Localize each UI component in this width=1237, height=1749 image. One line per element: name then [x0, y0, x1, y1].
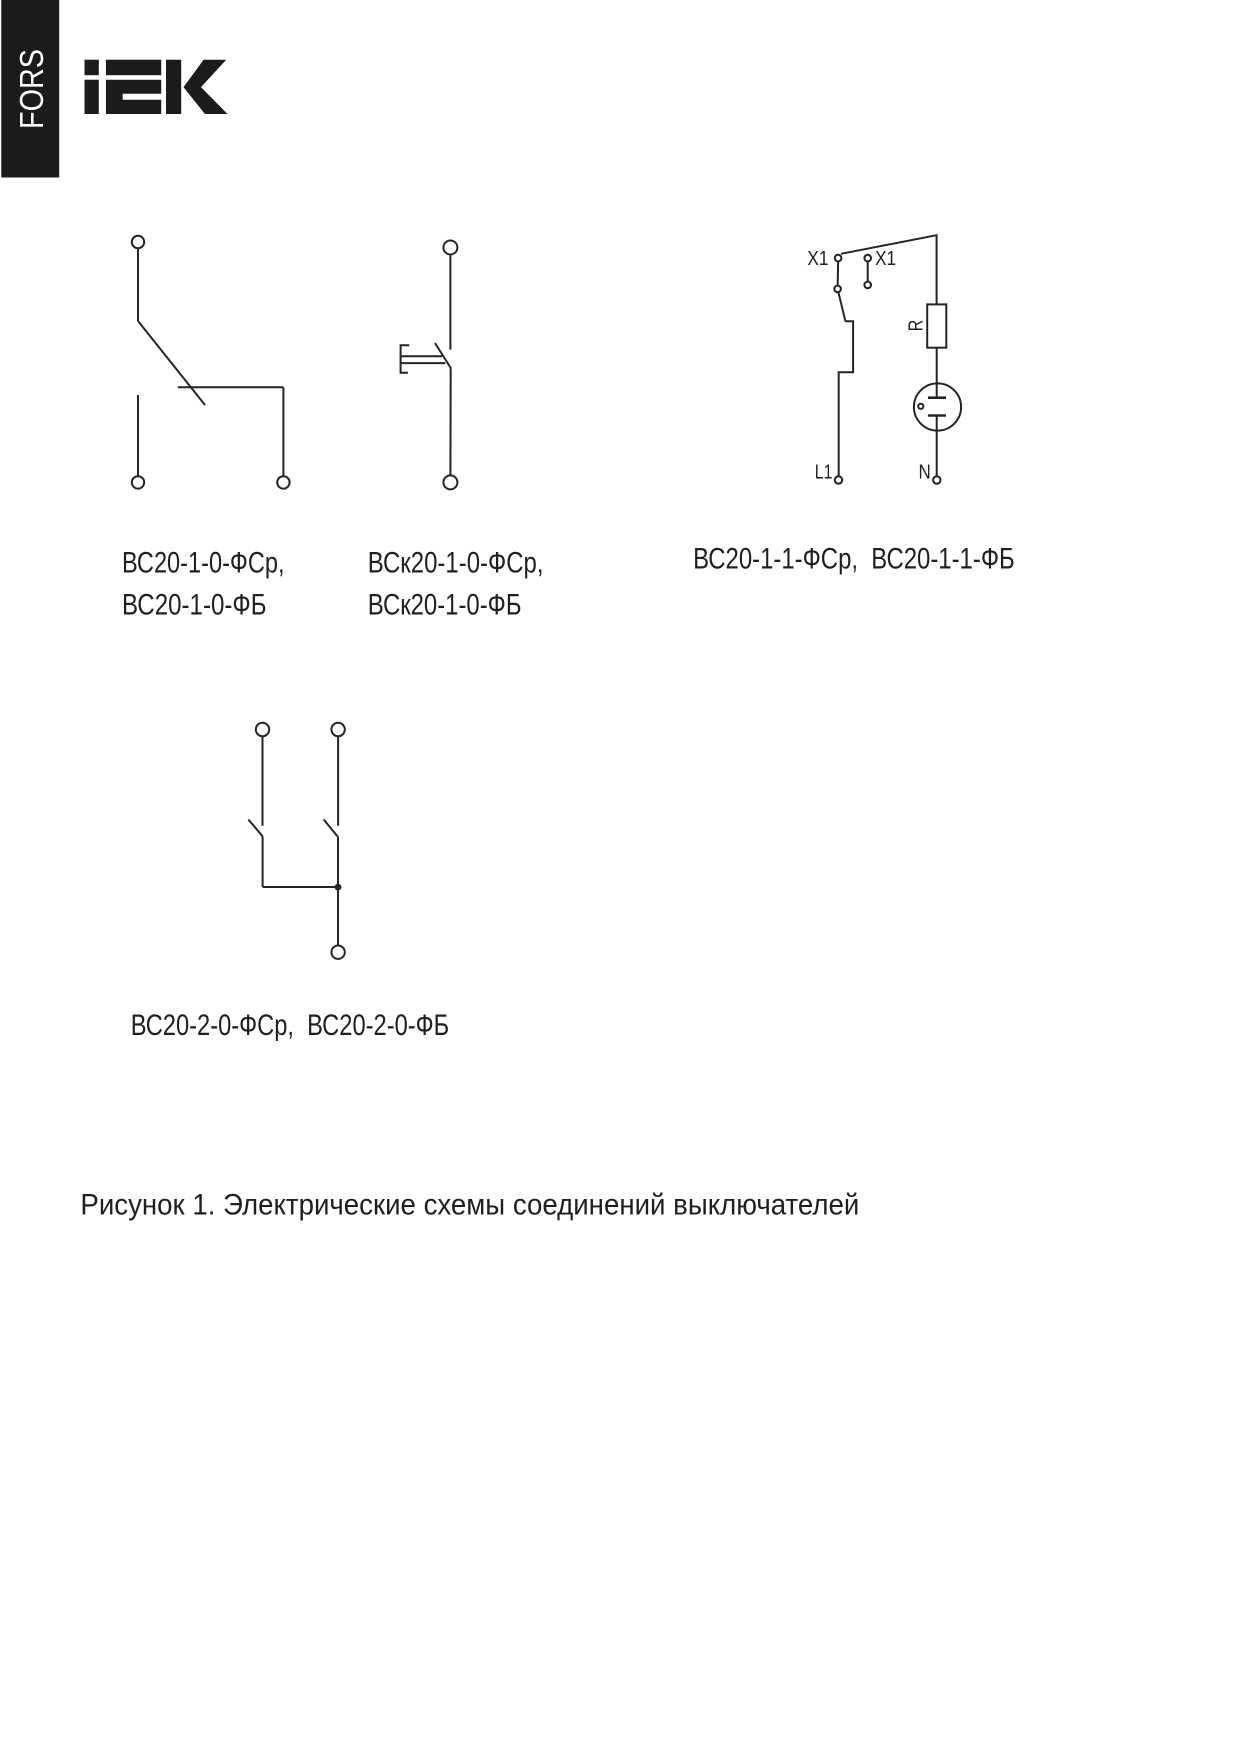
svg-text:L1: L1 [815, 461, 833, 483]
svg-text:ВС20-1-1-ФСр, ВС20-1-1-ФБ: ВС20-1-1-ФСр, ВС20-1-1-ФБ [693, 543, 1015, 576]
svg-text:R: R [905, 320, 927, 332]
svg-text:X1: X1 [875, 248, 896, 270]
svg-text:ВС20-1-0-ФСр,: ВС20-1-0-ФСр, [122, 547, 285, 580]
svg-text:ВСк20-1-0-ФБ: ВСк20-1-0-ФБ [368, 589, 522, 622]
svg-text:X1: X1 [807, 248, 828, 270]
svg-text:ВС20-2-0-ФСр, ВС20-2-0-ФБ: ВС20-2-0-ФСр, ВС20-2-0-ФБ [131, 1009, 450, 1042]
svg-text:FORS: FORS [13, 49, 50, 129]
svg-text:ВС20-1-0-ФБ: ВС20-1-0-ФБ [122, 589, 267, 622]
svg-text:ВСк20-1-0-ФСр,: ВСк20-1-0-ФСр, [368, 547, 544, 580]
svg-text:Рисунок 1. Электрические схемы: Рисунок 1. Электрические схемы соединени… [80, 1189, 859, 1222]
svg-text:N: N [919, 461, 931, 483]
